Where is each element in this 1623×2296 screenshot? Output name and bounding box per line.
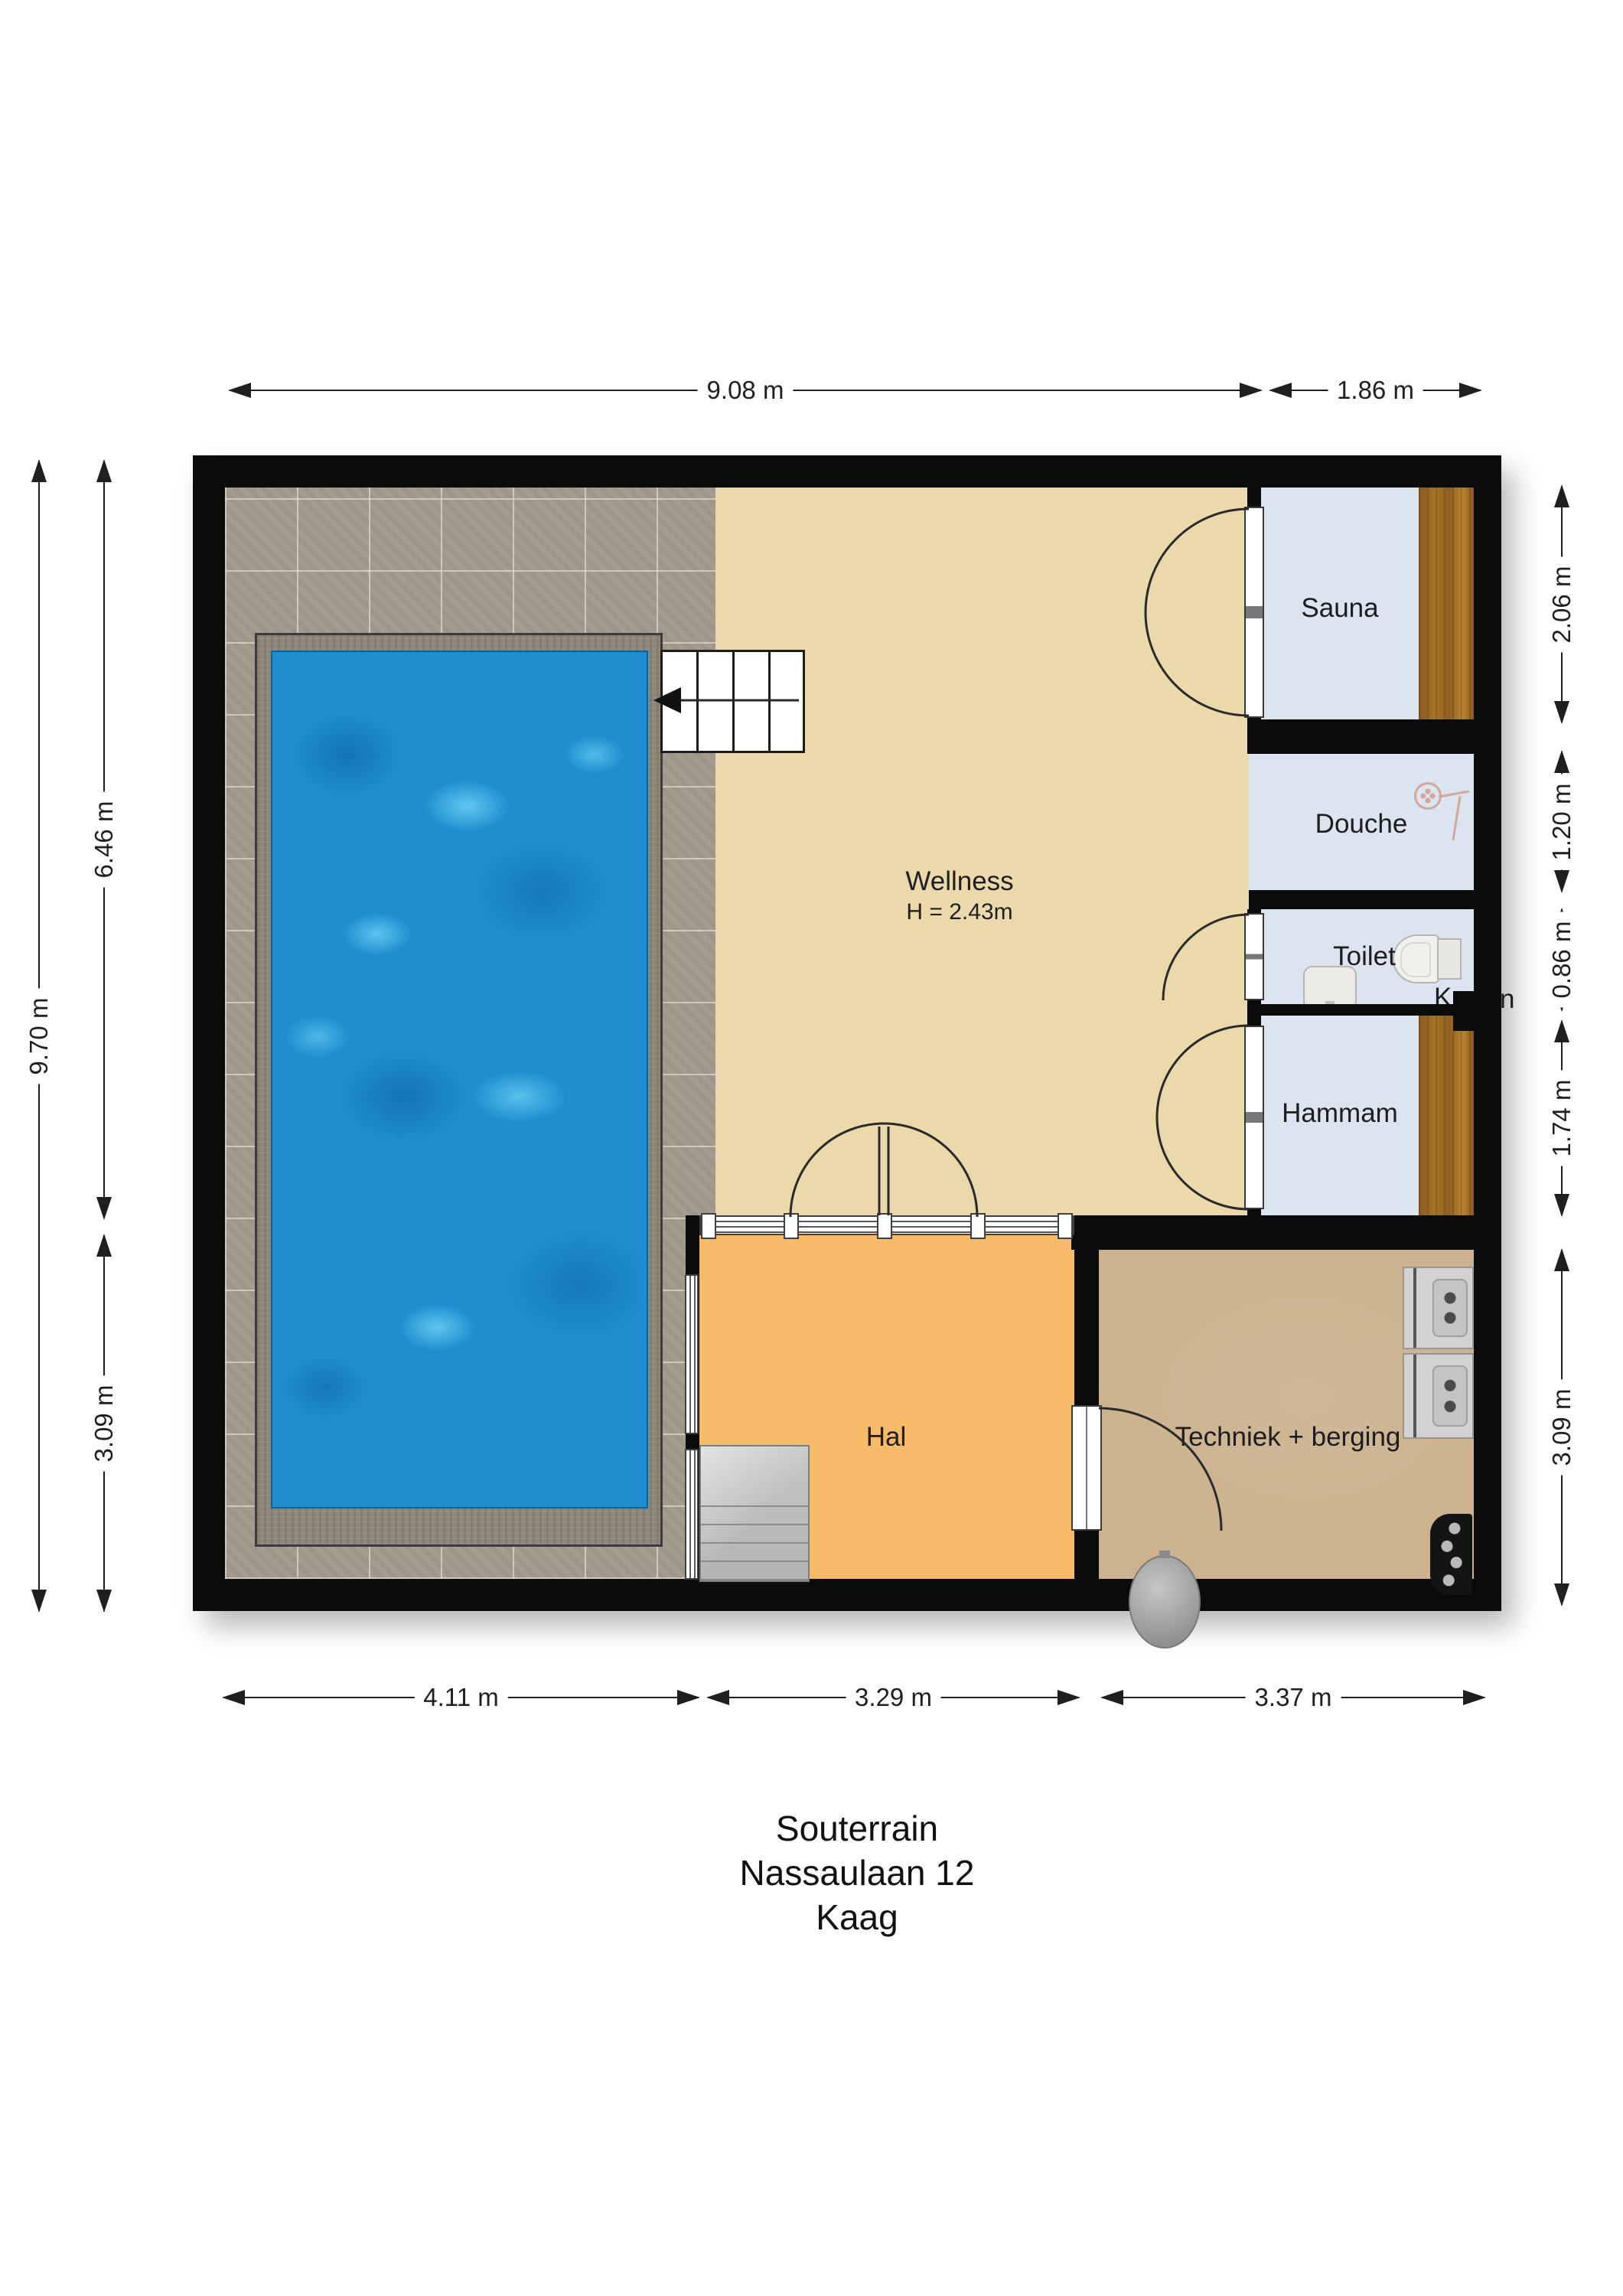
washer-unit-1 xyxy=(1403,1267,1474,1349)
glass-wall-post xyxy=(701,1213,716,1239)
dim-right-sauna: 2.06 m xyxy=(1561,486,1563,722)
washer-door xyxy=(1432,1365,1468,1427)
plan-title: Souterrain Nassaulaan 12 Kaag xyxy=(740,1806,975,1939)
room-label: Wellness xyxy=(905,866,1013,897)
toilet-label: Toilet xyxy=(1333,941,1396,972)
boiler-tank xyxy=(1129,1555,1201,1649)
dim-label: 3.37 m xyxy=(1246,1683,1341,1712)
dim-label: 2.06 m xyxy=(1547,556,1576,652)
dim-right-douche: 1.20 m xyxy=(1561,752,1563,892)
washer-door xyxy=(1432,1279,1468,1337)
toilet-seat xyxy=(1400,942,1431,977)
arrow-right-icon xyxy=(1459,383,1482,398)
dim-right-hammam: 1.74 m xyxy=(1561,1021,1563,1215)
dim-bottom-pool: 4.11 m xyxy=(223,1697,699,1698)
arrow-left-icon xyxy=(1269,383,1292,398)
dim-label: 3.09 m xyxy=(90,1375,119,1471)
dim-right-bottom: 3.09 m xyxy=(1561,1250,1563,1605)
obscured-label-right: n xyxy=(1500,984,1514,1015)
arrow-up-icon xyxy=(96,1234,112,1257)
arrow-down-icon xyxy=(1554,1583,1569,1606)
dim-label: 3.09 m xyxy=(1547,1380,1576,1476)
dim-bottom-hal: 3.29 m xyxy=(708,1697,1079,1698)
arrow-up-icon xyxy=(96,459,112,482)
title-line-street: Nassaulaan 12 xyxy=(740,1851,975,1895)
dim-label: 1.20 m xyxy=(1547,774,1576,869)
glass-wall-post xyxy=(877,1213,892,1239)
dim-label: 9.08 m xyxy=(698,376,794,405)
hammam-label: Hammam xyxy=(1282,1098,1398,1129)
room-height-note: H = 2.43m xyxy=(905,897,1013,928)
toilet-door xyxy=(1244,913,1264,1000)
staircase-down xyxy=(699,1445,810,1582)
shower-icon xyxy=(1414,782,1442,810)
toilet-tank xyxy=(1437,938,1462,980)
hal-window-2 xyxy=(685,1449,699,1580)
arrow-right-icon xyxy=(1463,1690,1486,1705)
arrow-right-icon xyxy=(1240,383,1263,398)
hal-window-1 xyxy=(685,1274,699,1434)
techniek-door xyxy=(1071,1405,1102,1531)
boiler-valve xyxy=(1159,1551,1170,1558)
arrow-down-icon xyxy=(31,1590,47,1613)
hal-label: Hal xyxy=(866,1422,907,1453)
arrow-down-icon xyxy=(1554,701,1569,724)
swimming-pool xyxy=(271,651,648,1508)
wall-toilet-bottom xyxy=(1247,1004,1474,1016)
sauna-bench-wood xyxy=(1419,488,1474,719)
title-line-floor: Souterrain xyxy=(740,1806,975,1851)
sauna-label: Sauna xyxy=(1301,593,1378,624)
dim-label: 0.86 m xyxy=(1547,912,1576,1008)
washer-panel xyxy=(1413,1268,1416,1348)
arrow-down-icon xyxy=(1554,1194,1569,1217)
arrow-right-icon xyxy=(1058,1690,1080,1705)
arrow-down-icon xyxy=(96,1197,112,1220)
sauna-door xyxy=(1244,507,1264,718)
dim-label: 9.70 m xyxy=(24,988,54,1084)
arrow-left-icon xyxy=(222,1690,245,1705)
arrow-left-icon xyxy=(706,1690,729,1705)
wall-sauna-bottom xyxy=(1247,719,1474,754)
wall-douche-bottom xyxy=(1249,890,1474,909)
washer-panel xyxy=(1413,1355,1416,1437)
staircase-up xyxy=(660,650,805,753)
arrow-up-icon xyxy=(31,459,47,482)
dim-left-upper: 6.46 m xyxy=(103,461,105,1218)
wall-south-of-wellness xyxy=(1071,1215,1474,1250)
dim-label: 6.46 m xyxy=(90,792,119,888)
arrow-up-icon xyxy=(1554,1019,1569,1042)
heater-unit xyxy=(1430,1514,1472,1595)
wellness-label: Wellness H = 2.43m xyxy=(905,866,1013,928)
techniek-label: Techniek + berging xyxy=(1175,1422,1401,1453)
arrow-left-icon xyxy=(1100,1690,1123,1705)
dim-left-total: 9.70 m xyxy=(38,461,40,1611)
toilet-fixture xyxy=(1393,934,1440,983)
hammam-bench-wood xyxy=(1419,1016,1474,1215)
dim-bottom-techniek: 3.37 m xyxy=(1102,1697,1484,1698)
washer-unit-2 xyxy=(1403,1353,1474,1439)
glass-wall-post xyxy=(1058,1213,1073,1239)
hammam-door xyxy=(1244,1026,1264,1209)
dim-label: 1.86 m xyxy=(1328,376,1423,405)
dim-top-right: 1.86 m xyxy=(1270,390,1481,391)
arrow-up-icon xyxy=(1554,750,1569,773)
dim-label: 4.11 m xyxy=(414,1683,507,1712)
glass-wall-post xyxy=(784,1213,799,1239)
arrow-down-icon xyxy=(1554,870,1569,893)
arrow-down-icon xyxy=(96,1590,112,1613)
glass-wall-post xyxy=(970,1213,986,1239)
arrow-left-icon xyxy=(228,383,251,398)
arrow-up-icon xyxy=(1554,484,1569,507)
arrow-right-icon xyxy=(677,1690,700,1705)
stair-treads xyxy=(701,1489,808,1580)
dim-right-toilet: 0.86 m xyxy=(1561,909,1563,1010)
title-line-city: Kaag xyxy=(740,1895,975,1939)
arrow-up-icon xyxy=(1554,1248,1569,1271)
dim-left-lower: 3.09 m xyxy=(103,1235,105,1611)
dim-top-main: 9.08 m xyxy=(230,390,1261,391)
floor-plan-canvas: K n xyxy=(0,0,1623,2296)
dim-label: 1.74 m xyxy=(1547,1071,1576,1166)
wall-corner-chunk xyxy=(1453,991,1501,1031)
douche-label: Douche xyxy=(1315,809,1408,840)
dim-label: 3.29 m xyxy=(846,1683,941,1712)
